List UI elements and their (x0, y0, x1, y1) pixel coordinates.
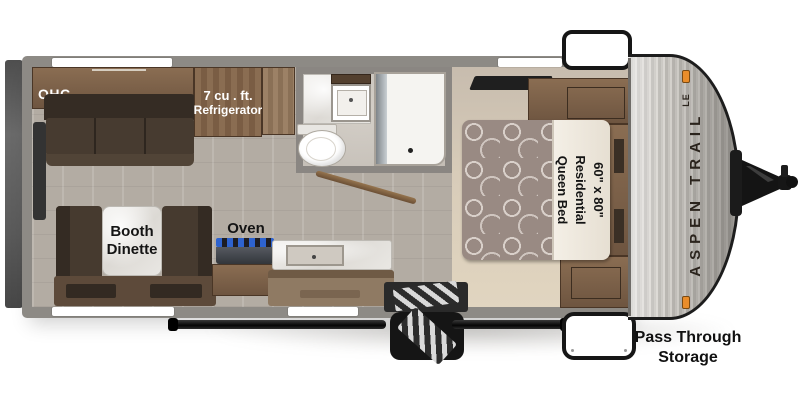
bed-label-name: Queen Bed (553, 156, 571, 225)
stove-burners (216, 238, 274, 247)
awning-rail-left (174, 320, 386, 329)
brand-name: ASPEN TRAIL (687, 111, 704, 277)
bed-label-type: Residential (571, 155, 589, 224)
sofa-cushions (46, 118, 194, 156)
window-top-right (498, 58, 562, 67)
storage-label-line1: Pass Through (632, 328, 744, 348)
window-bottom-left (52, 307, 174, 316)
window-top-left (52, 58, 172, 67)
refrigerator-label-line1: 7 cu . ft. (203, 88, 252, 103)
shower (374, 72, 446, 166)
rear-bumper (5, 60, 23, 308)
floorplan: OHC 7 cu . ft. Refrigerator (0, 0, 800, 400)
toilet (298, 130, 346, 167)
stove-body (216, 247, 274, 264)
bathroom-sink (331, 84, 371, 122)
vanity-shelf (331, 74, 371, 84)
kitchen-sink (286, 245, 344, 266)
bed-mattress (462, 120, 552, 260)
dinette-label-line1: Booth (110, 223, 153, 241)
entry-step-well (384, 282, 468, 312)
kitchen-sink-drain (312, 255, 316, 259)
sofa-back (44, 94, 196, 120)
bed-label-size: 60" x 80" (589, 162, 607, 218)
brand-logo: ASPEN TRAIL LE (681, 65, 709, 305)
oven-label: Oven (222, 220, 270, 237)
tongue-a-frame-jack (726, 148, 798, 220)
dinette-label-line2: Dinette (107, 241, 158, 259)
sofa-skirt (46, 154, 194, 166)
brand-edition: LE (681, 93, 691, 107)
shower-drain (408, 148, 413, 153)
awning-rail-right (452, 320, 566, 329)
shower-glass (376, 74, 387, 164)
dinette-base (54, 276, 216, 306)
refrigerator-label-line2: Refrigerator (194, 103, 263, 117)
window-bottom-mid (288, 307, 358, 316)
pass-through-hatch-bottom (562, 312, 636, 360)
fold-out-entry-steps (390, 312, 464, 360)
dinette-table: Booth Dinette (102, 206, 162, 276)
bed-pillow-divider (92, 69, 146, 71)
stove-oven (216, 238, 274, 264)
storage-label: Pass Through Storage (632, 328, 744, 368)
storage-label-line2: Storage (632, 348, 744, 368)
pantry-cabinet (262, 67, 295, 135)
pass-through-hatch-top (562, 30, 632, 70)
refrigerator: 7 cu . ft. Refrigerator (194, 67, 262, 137)
sink-drain (349, 98, 353, 102)
kitchen-cabinet (268, 270, 394, 306)
sofa (44, 94, 196, 166)
bed-side-cabinet (608, 124, 630, 256)
awning-bracket-left (168, 318, 178, 331)
stove-cabinet (212, 264, 276, 296)
bed-label: 60" x 80" Residential Queen Bed (552, 116, 608, 264)
cap-seam (628, 58, 631, 316)
